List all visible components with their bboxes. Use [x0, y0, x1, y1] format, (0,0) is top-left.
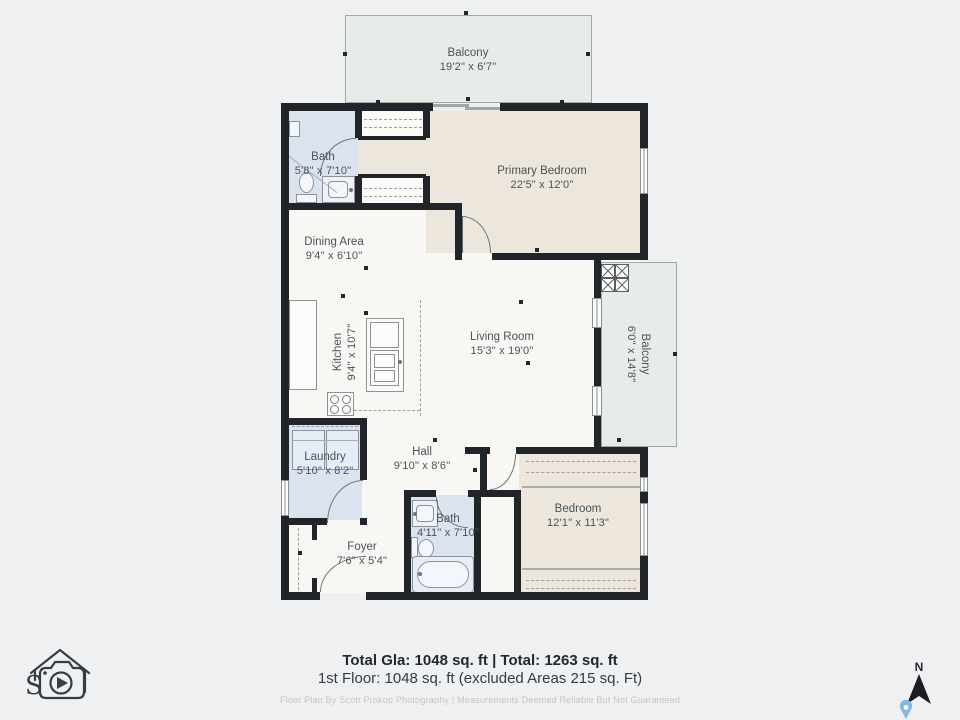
bedroom-closet-rail — [526, 588, 636, 589]
room-name: Bath — [378, 512, 518, 526]
toilet-tank — [296, 194, 317, 203]
wall-segment — [594, 328, 601, 386]
wall-segment — [423, 111, 430, 138]
closet-rail — [364, 196, 422, 197]
wall-tick — [343, 52, 347, 56]
room-label-balcony-top: Balcony 19'2" x 6'7" — [398, 46, 538, 74]
wall-segment — [360, 518, 367, 525]
room-label-dining: Dining Area 9'4" x 6'10" — [264, 235, 404, 263]
wall-tick — [364, 311, 368, 315]
wall-tick — [466, 97, 470, 101]
wall-tick — [464, 11, 468, 15]
kitchen-island-cabinet — [370, 322, 399, 348]
room-label-bath-upper: Bath 5'8" x 7'10" — [253, 150, 393, 178]
room-label-living: Living Room 15'3" x 19'0" — [432, 330, 572, 358]
wall-segment — [500, 103, 648, 111]
wall-segment — [640, 556, 648, 600]
kitchen-boundary-dash — [420, 300, 421, 416]
wall-segment — [594, 260, 601, 298]
bedroom-closet-rail — [526, 472, 636, 473]
closet-upper-box — [362, 111, 423, 136]
room-dims: 9'10" x 8'6" — [352, 459, 492, 473]
wall-tick — [526, 361, 530, 365]
location-pin-icon — [898, 700, 914, 720]
room-name: Bath — [253, 150, 393, 164]
bedroom-closet-front — [522, 486, 640, 488]
wall-tick — [617, 438, 621, 442]
wall-segment — [455, 203, 462, 260]
room-dims: 12'1" x 11'3" — [508, 516, 648, 530]
room-dims: 9'4" x 6'10" — [264, 249, 404, 263]
wall-tick — [586, 52, 590, 56]
svg-text:S: S — [25, 671, 43, 701]
wall-segment — [468, 490, 521, 497]
sliding-door — [433, 104, 469, 107]
wall-segment — [366, 592, 648, 600]
totals-line: Total Gla: 1048 sq. ft | Total: 1263 sq.… — [0, 652, 960, 669]
room-name: Bedroom — [508, 502, 648, 516]
room-name: Balcony — [398, 46, 538, 60]
balcony-sliding-door — [592, 386, 602, 416]
kitchen-sink-basin-bottom — [374, 370, 395, 382]
closet-rail — [364, 127, 422, 128]
kitchen-counter — [289, 300, 317, 390]
closet-lower-box — [362, 178, 423, 203]
wall-segment — [281, 516, 289, 600]
room-dims: 5'8" x 7'10" — [253, 164, 393, 178]
room-name: Hall — [352, 445, 492, 459]
room-dims: 19'2" x 6'7" — [398, 60, 538, 74]
room-name: Dining Area — [264, 235, 404, 249]
credit-line: Floor Plan By Scott Prokop Photography |… — [0, 695, 960, 705]
room-dims: 6'0" x 14'8" — [624, 284, 638, 424]
room-dims: 9'4" x 10'7" — [345, 282, 359, 422]
wall-segment — [423, 176, 430, 203]
wall-segment — [281, 518, 327, 525]
window — [281, 480, 289, 516]
wall-segment — [281, 203, 462, 210]
room-name: Balcony — [638, 284, 652, 424]
kitchen-boundary-dash — [354, 410, 420, 411]
bedroom-closet-rail — [526, 461, 636, 462]
bedroom-closet-front — [522, 568, 640, 570]
laundry-unit-band — [292, 440, 359, 441]
wall-segment — [355, 176, 362, 203]
balcony-sliding-door — [592, 298, 602, 328]
tub-faucet-dot — [418, 572, 422, 576]
room-name: Kitchen — [331, 282, 345, 422]
window — [640, 148, 648, 194]
wall-tick — [364, 266, 368, 270]
room-name: Living Room — [432, 330, 572, 344]
wall-tick — [560, 100, 564, 104]
wall-tick — [535, 248, 539, 252]
kitchen-sink-basin-top — [374, 354, 395, 368]
room-dims: 4'11" x 7'10" — [378, 526, 518, 540]
wall-tick — [376, 100, 380, 104]
wall-segment — [281, 592, 320, 600]
wall-sink — [289, 121, 300, 137]
wall-segment — [640, 194, 648, 253]
room-label-balcony-right: Balcony 6'0" x 14'8" — [624, 284, 652, 424]
wall-segment — [516, 447, 648, 454]
wall-segment — [312, 578, 317, 593]
wall-segment — [594, 416, 601, 447]
room-label-primary-bedroom: Primary Bedroom 22'5" x 12'0" — [452, 164, 632, 192]
room-label-hall: Hall 9'10" x 8'6" — [352, 445, 492, 473]
wall-tick — [673, 352, 677, 356]
first-floor-line: 1st Floor: 1048 sq. ft (excluded Areas 2… — [0, 670, 960, 687]
sliding-door — [465, 107, 500, 110]
wall-segment — [404, 490, 436, 497]
window — [640, 477, 648, 492]
closet-rail — [364, 188, 422, 189]
room-name: Primary Bedroom — [452, 164, 632, 178]
floor-plan-page: Balcony 19'2" x 6'7" Bath 5'8" x 7'10" P… — [0, 0, 960, 720]
room-dims: 15'3" x 19'0" — [432, 344, 572, 358]
room-label-kitchen: Kitchen 9'4" x 10'7" — [331, 282, 359, 422]
laundry-dash — [292, 426, 358, 427]
wall-segment — [281, 103, 433, 111]
wall-tick — [433, 438, 437, 442]
bedroom-closet-rail — [526, 580, 636, 581]
kitchen-faucet-dot — [398, 360, 402, 364]
wall-segment — [640, 103, 648, 148]
north-label: N — [904, 660, 934, 674]
wall-segment — [355, 111, 362, 138]
wall-segment — [492, 253, 648, 260]
wall-tick — [519, 300, 523, 304]
wall-segment — [358, 136, 426, 140]
wall-segment — [312, 525, 317, 540]
room-dims: 22'5" x 12'0" — [452, 178, 632, 192]
room-label-foyer: Foyer 7'6" x 5'4" — [292, 540, 432, 568]
room-name: Foyer — [292, 540, 432, 554]
photographer-logo-icon: S — [24, 640, 96, 712]
faucet-dot — [349, 188, 353, 192]
room-dims: 7'6" x 5'4" — [292, 554, 432, 568]
room-label-bath-lower: Bath 4'11" x 7'10" — [378, 512, 518, 540]
room-label-bedroom: Bedroom 12'1" x 11'3" — [508, 502, 648, 530]
closet-rail — [364, 119, 422, 120]
